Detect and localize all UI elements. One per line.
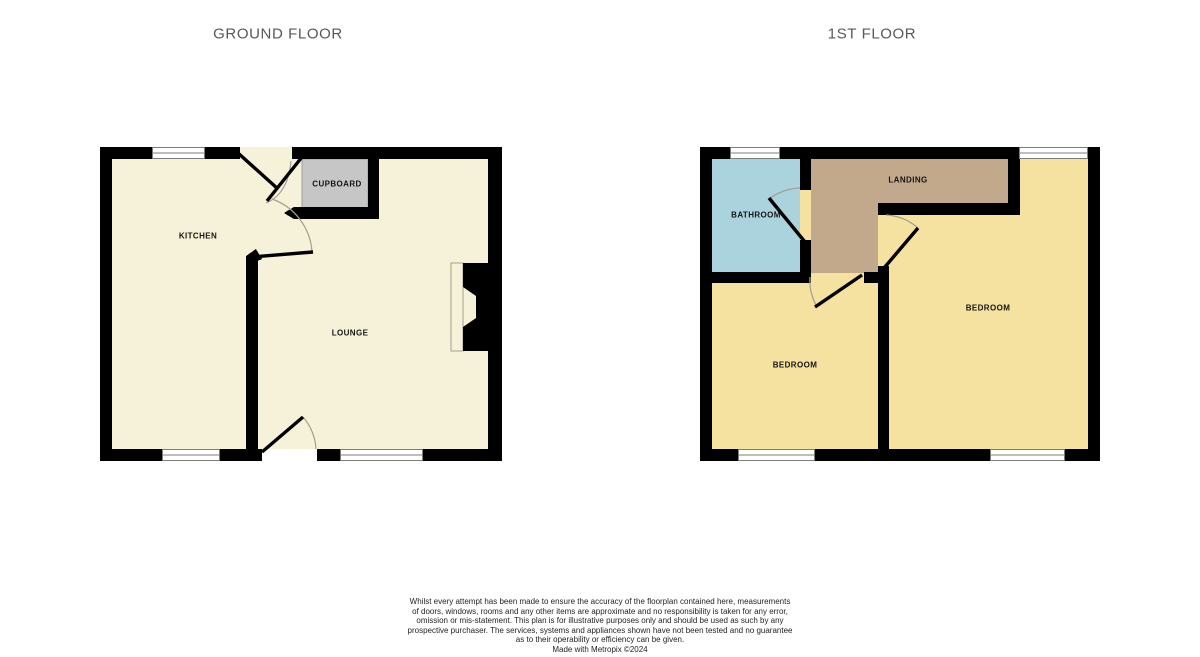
back-door-opening xyxy=(240,147,292,159)
disclaimer-line: prospective purchaser. The services, sys… xyxy=(408,626,793,636)
room-label-bedroom-right: BEDROOM xyxy=(966,304,1011,313)
disclaimer-line: Whilst every attempt has been made to en… xyxy=(408,597,793,607)
room-label-bedroom-left: BEDROOM xyxy=(773,361,818,370)
room-label-lounge: LOUNGE xyxy=(332,329,369,338)
first-floor-plan xyxy=(700,147,1100,461)
room-label-cupboard: CUPBOARD xyxy=(312,180,361,189)
metropix-credit: Made with Metropix ©2024 xyxy=(408,645,793,655)
floorplan-canvas xyxy=(0,0,1200,657)
room-label-bathroom: BATHROOM xyxy=(731,211,781,220)
disclaimer-line: of doors, windows, rooms and any other i… xyxy=(408,607,793,617)
fireplace-hearth xyxy=(451,263,463,351)
window xyxy=(991,450,1065,461)
disclaimer-line: omission or mis-statement. This plan is … xyxy=(408,616,793,626)
ground-floor-plan xyxy=(100,147,502,461)
window xyxy=(163,450,220,461)
window xyxy=(1020,148,1088,159)
ground-floor-title: GROUND FLOOR xyxy=(213,26,343,43)
front-door-opening xyxy=(262,449,317,461)
disclaimer-line: as to their operability or efficiency ca… xyxy=(408,635,793,645)
disclaimer-text: Whilst every attempt has been made to en… xyxy=(408,597,793,655)
window xyxy=(341,450,423,461)
window xyxy=(731,148,780,159)
window xyxy=(739,450,815,461)
ground-floor-room-fill xyxy=(112,159,488,449)
first-floor-title: 1ST FLOOR xyxy=(828,26,916,43)
room-label-landing: LANDING xyxy=(888,176,927,185)
window xyxy=(153,148,205,159)
room-label-kitchen: KITCHEN xyxy=(179,232,217,241)
